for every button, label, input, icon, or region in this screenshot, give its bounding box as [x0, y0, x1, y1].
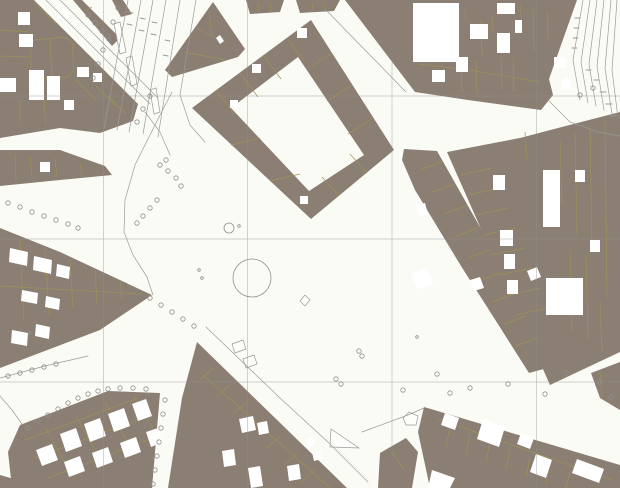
building-footprint	[257, 421, 269, 435]
building-footprint	[64, 100, 74, 110]
building-footprint	[413, 3, 459, 62]
building-footprint	[543, 170, 560, 227]
building-footprint	[456, 57, 468, 72]
building-footprint	[432, 70, 445, 82]
building-footprint	[562, 78, 571, 89]
building-footprint	[40, 162, 50, 172]
building-footprint	[47, 76, 60, 100]
building-footprint	[497, 33, 510, 53]
building-footprint	[297, 28, 307, 38]
building-footprint	[252, 64, 261, 73]
building-footprint	[507, 280, 518, 294]
city-map-canvas[interactable]	[0, 0, 620, 488]
building-footprint	[575, 170, 585, 182]
building-footprint	[546, 278, 583, 315]
building-footprint	[18, 12, 30, 25]
building-footprint	[554, 57, 565, 68]
building-footprint	[77, 67, 89, 77]
map-viewport[interactable]	[0, 0, 620, 488]
building-footprint	[29, 70, 44, 100]
building-footprint	[0, 78, 16, 92]
building-footprint	[497, 3, 515, 14]
block-top-strip-1	[246, 0, 284, 14]
building-footprint	[287, 464, 301, 481]
building-footprint	[470, 24, 488, 39]
building-footprint	[93, 73, 102, 82]
building-footprint	[19, 34, 33, 47]
building-footprint	[300, 196, 308, 204]
building-footprint	[222, 449, 236, 467]
building-footprint	[230, 100, 238, 108]
building-footprint	[504, 254, 515, 269]
building-footprint	[515, 20, 522, 33]
building-footprint	[500, 230, 513, 246]
building-footprint	[590, 240, 600, 252]
building-footprint	[493, 175, 505, 190]
